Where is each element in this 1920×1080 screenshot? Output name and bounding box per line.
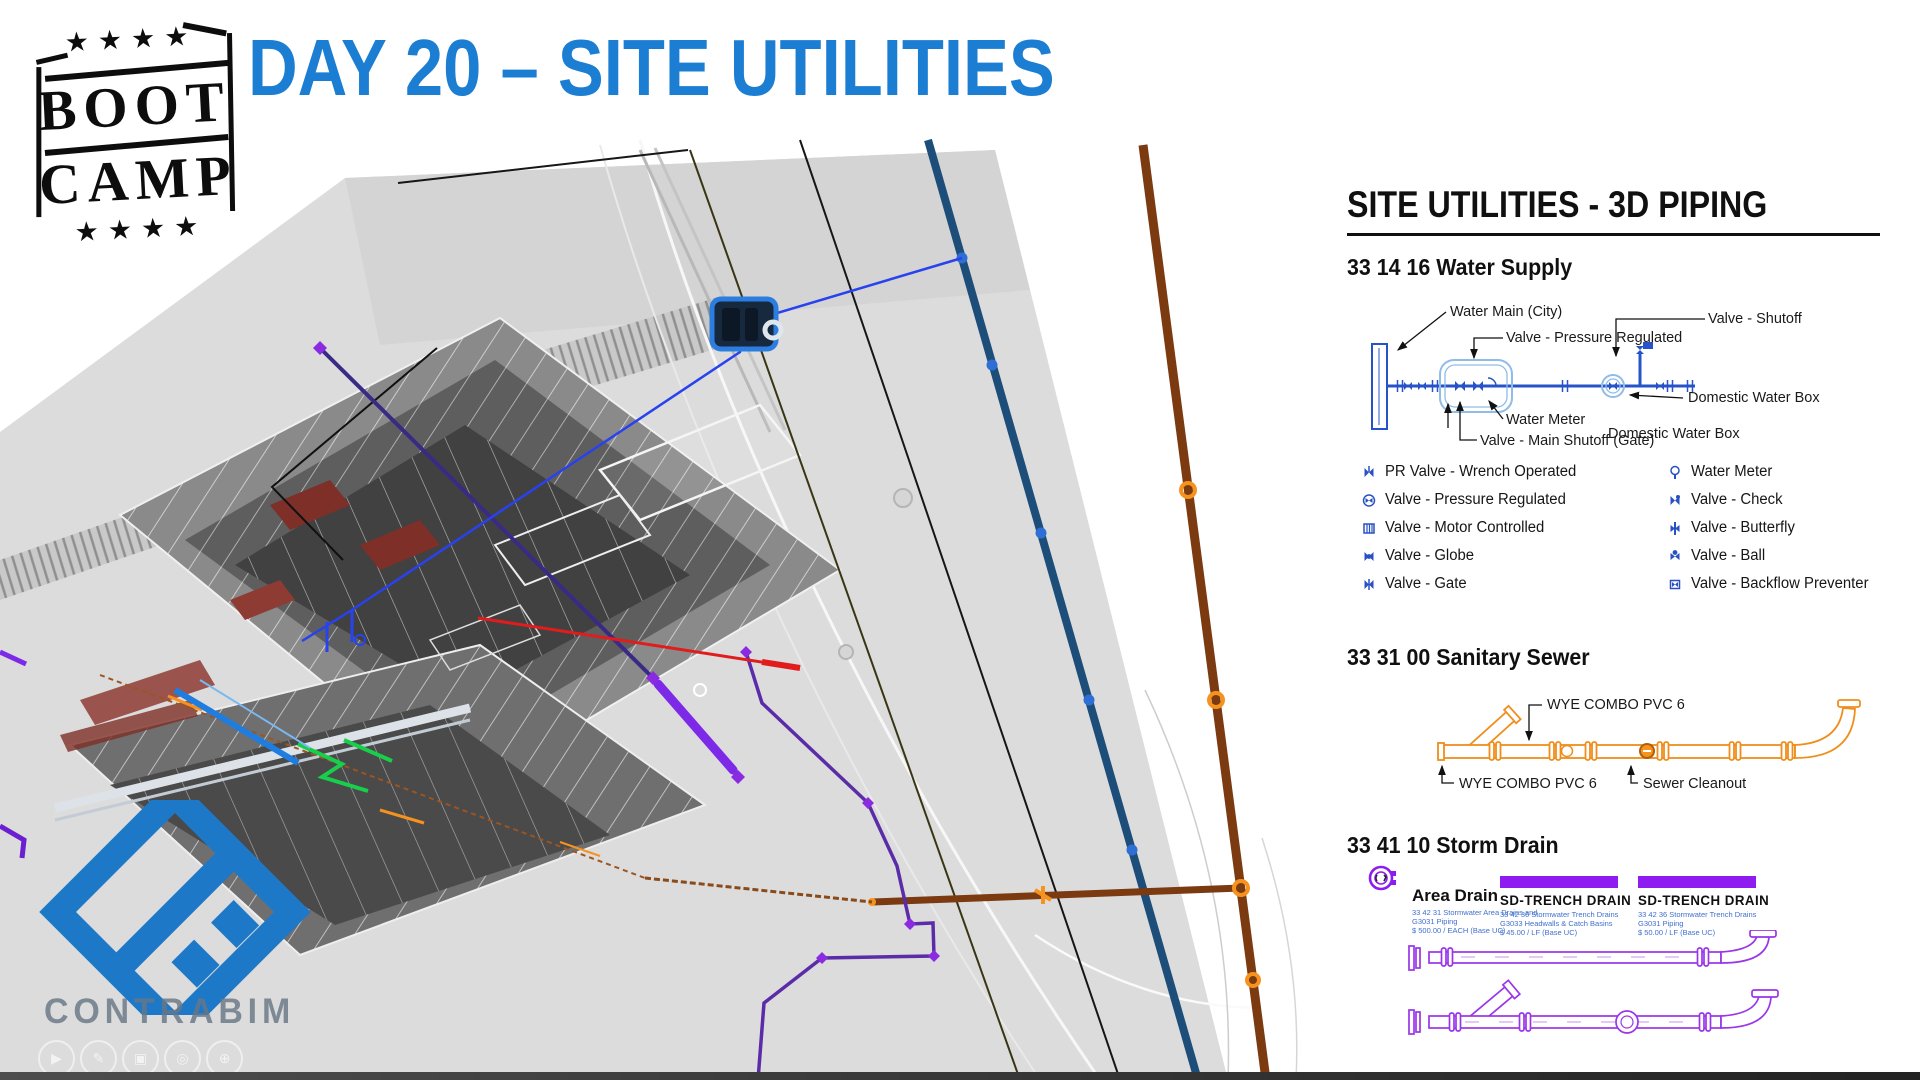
legend-row: Valve - Check <box>1668 486 1920 514</box>
panel-title-underline <box>1347 233 1880 236</box>
sanitary-sewer-diagram: WYE COMBO PVC 6 WYE COMBO PVC 6 Sewer Cl… <box>1395 688 1915 800</box>
legend-label: Valve - Globe <box>1385 547 1474 565</box>
water-meter-icon <box>1668 465 1682 480</box>
stamp-word-camp: CAMP <box>37 147 240 214</box>
legend-label: Valve - Gate <box>1385 575 1467 593</box>
valve-check-icon <box>1668 493 1682 508</box>
stamp-stars-top: ★★★★ <box>30 19 231 60</box>
trench-drain-bar <box>1638 876 1756 888</box>
legend-label: Water Meter <box>1691 463 1772 481</box>
bottom-bar <box>0 1072 1920 1080</box>
trench-drain-label: SD-TRENCH DRAIN <box>1500 892 1631 908</box>
water-diagram-labels: Water Main (City) Valve - Pressure Regul… <box>1450 304 1820 449</box>
legend-label: PR Valve - Wrench Operated <box>1385 463 1576 481</box>
brand-name: CONTRABIM <box>44 992 295 1032</box>
legend-row: Valve - Motor Controlled <box>1362 514 1672 542</box>
label-water-meter: Water Meter <box>1506 412 1585 428</box>
page-title: DAY 20 – SITE UTILITIES <box>248 22 1055 114</box>
legend-label: Valve - Pressure Regulated <box>1385 491 1566 509</box>
area-drain-icon <box>1366 862 1398 894</box>
stamp-word-boot: BOOT <box>33 73 236 140</box>
valve-butterfly-icon <box>1668 521 1682 536</box>
legend-row: Valve - Ball <box>1668 542 1920 570</box>
legend-row: Valve - Pressure Regulated <box>1362 486 1672 514</box>
legend-row: Valve - Butterfly <box>1668 514 1920 542</box>
legend-row: Water Meter <box>1668 458 1920 486</box>
legend-label: Valve - Ball <box>1691 547 1765 565</box>
valve-gate-icon <box>1362 577 1376 592</box>
legend-label: Valve - Butterfly <box>1691 519 1795 537</box>
trench-drain-label: SD-TRENCH DRAIN <box>1638 892 1769 908</box>
area-drain-label: Area Drain <box>1412 886 1498 906</box>
legend-row: Valve - Backflow Preventer <box>1668 570 1920 598</box>
legend-row: Valve - Gate <box>1362 570 1672 598</box>
spec-line: 33 42 36 Stormwater Trench Drains <box>1638 910 1756 919</box>
sanitary-heading: 33 31 00 Sanitary Sewer <box>1347 644 1590 671</box>
water-supply-diagram: Water Main (City) Valve - Pressure Regul… <box>1360 298 1920 450</box>
label-valve-shutoff: Valve - Shutoff <box>1708 311 1803 327</box>
label-wye-combo-bottom: WYE COMBO PVC 6 <box>1459 776 1597 792</box>
label-wye-combo-top: WYE COMBO PVC 6 <box>1547 697 1685 713</box>
storm-heading: 33 41 10 Storm Drain <box>1347 832 1559 859</box>
label-domestic-water-box-2: Domestic Water Box <box>1608 426 1740 442</box>
valve-wrench-icon <box>1362 465 1376 480</box>
storm-pipe-run-2 <box>1409 980 1778 1034</box>
boot-camp-stamp: ★★★★ BOOT CAMP ★★★★ <box>30 17 241 249</box>
spec-line: G3033 Headwalls & Catch Basins <box>1500 919 1618 928</box>
valve-legend-left: PR Valve - Wrench Operated Valve - Press… <box>1362 458 1672 598</box>
legend-row: Valve - Globe <box>1362 542 1672 570</box>
legend-label: Valve - Motor Controlled <box>1385 519 1544 537</box>
legend-label: Valve - Backflow Preventer <box>1691 575 1869 593</box>
legend-row: PR Valve - Wrench Operated <box>1362 458 1672 486</box>
valve-motor-controlled-icon <box>1362 521 1376 536</box>
trench-drain-bar <box>1500 876 1618 888</box>
valve-globe-icon <box>1362 549 1376 564</box>
panel-title: SITE UTILITIES - 3D PIPING <box>1347 184 1767 226</box>
storm-drain-diagram <box>1395 930 1815 1075</box>
spec-line: 33 42 36 Stormwater Trench Drains <box>1500 910 1618 919</box>
label-valve-pr: Valve - Pressure Regulated <box>1506 330 1682 346</box>
valve-ball-icon <box>1668 549 1682 564</box>
valve-pressure-regulated-icon <box>1362 493 1376 508</box>
storm-pipe-run-1 <box>1409 930 1776 970</box>
contrabim-logo <box>30 800 330 1015</box>
legend-label: Valve - Check <box>1691 491 1783 509</box>
valve-backflow-preventer-icon <box>1668 577 1682 592</box>
slide: ★★★★ BOOT CAMP ★★★★ DAY 20 – SITE UTILIT… <box>0 0 1920 1080</box>
spec-line: G3031 Piping <box>1638 919 1756 928</box>
label-water-main: Water Main (City) <box>1450 304 1562 320</box>
valve-legend-right: Water Meter Valve - Check Valve - Butter… <box>1668 458 1920 598</box>
label-domestic-water-box: Domestic Water Box <box>1688 390 1820 406</box>
water-supply-heading: 33 14 16 Water Supply <box>1347 254 1572 281</box>
label-sewer-cleanout: Sewer Cleanout <box>1643 776 1746 792</box>
